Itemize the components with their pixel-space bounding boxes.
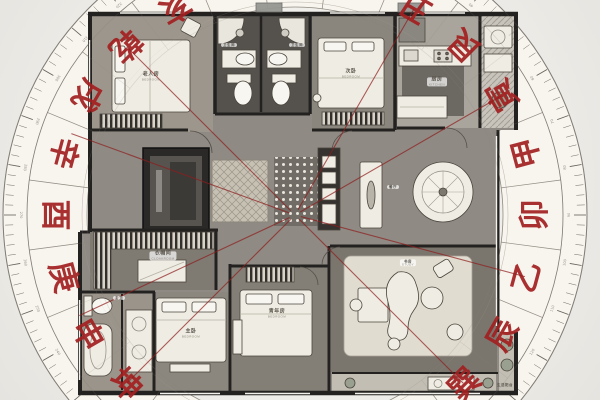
room-study (344, 256, 472, 356)
core-block (143, 148, 209, 232)
dining-table (413, 162, 473, 222)
fengshui-floorplan-image: 9080706050403020100350340330320310300290… (0, 0, 600, 400)
room-second-bedroom (313, 38, 384, 125)
room-master-bedroom (156, 298, 226, 372)
floor-plan (0, 0, 600, 400)
ac-units (256, 3, 424, 12)
